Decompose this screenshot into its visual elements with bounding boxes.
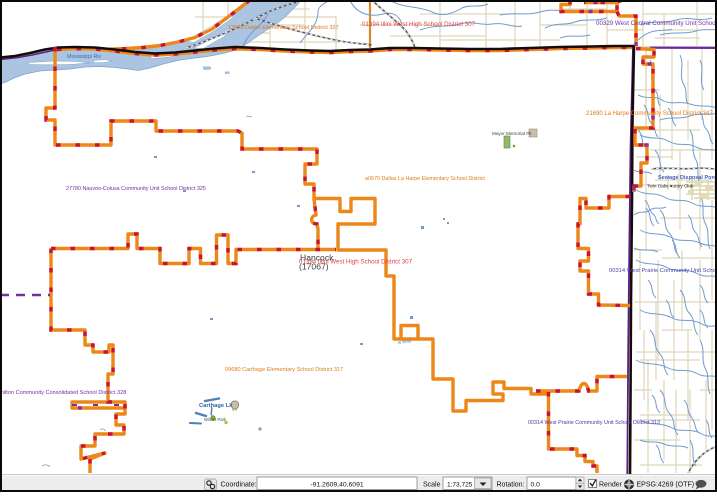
svg-text:Coordinate:: Coordinate: [221,482,257,489]
svg-text:0.0: 0.0 [531,482,541,489]
svg-text:Twin Oaks ●untry Club: Twin Oaks ●untry Club [647,184,694,189]
svg-text:a0670 Dallas La Harpe Elementa: a0670 Dallas La Harpe Elementary School … [365,176,485,182]
svg-text:00314 West Prairie Community U: 00314 West Prairie Community Unit School… [609,268,717,274]
svg-text:Hamilton Community Consolidate: Hamilton Community Consolidated School D… [0,390,126,396]
svg-text:01394 Illini West High School: 01394 Illini West High School District 3… [362,21,476,28]
svg-text:-91.2609,40.6091: -91.2609,40.6091 [310,482,364,489]
svg-text:21690 La Harpe Community Schoo: 21690 La Harpe Community School District… [586,111,713,117]
svg-text:27780 Nauvoo-Colusa Community: 27780 Nauvoo-Colusa Community Unit Schoo… [66,186,206,192]
svg-text:Mayor Memorial Pk: Mayor Memorial Pk [492,131,532,136]
svg-text:Sewage Disposal Pond: Sewage Disposal Pond [658,175,717,181]
svg-text:1:73,725: 1:73,725 [447,481,473,488]
svg-text:00314 West Prairie Community U: 00314 West Prairie Community Unit School… [528,420,660,426]
svg-text:Rotation:: Rotation: [497,482,525,489]
svg-text:EPSG:4269 (OTF): EPSG:4269 (OTF) [637,482,695,489]
svg-text:09680 Carthage Elementary Scho: 09680 Carthage Elementary School Distric… [225,367,343,373]
svg-text:Scale: Scale [423,482,441,489]
svg-text:Render: Render [599,482,623,489]
svg-text:Mississippi Riv: Mississippi Riv [67,54,101,60]
svg-text:13640 Dallas Elementary School: 13640 Dallas Elementary School District … [228,25,339,31]
svg-text:Carthage Lk: Carthage Lk [199,403,233,409]
svg-text:(17067): (17067) [299,262,329,272]
svg-text:Wilcox Park: Wilcox Park [204,417,227,422]
svg-text:00329 West Central Community U: 00329 West Central Community Unit School… [596,20,717,27]
